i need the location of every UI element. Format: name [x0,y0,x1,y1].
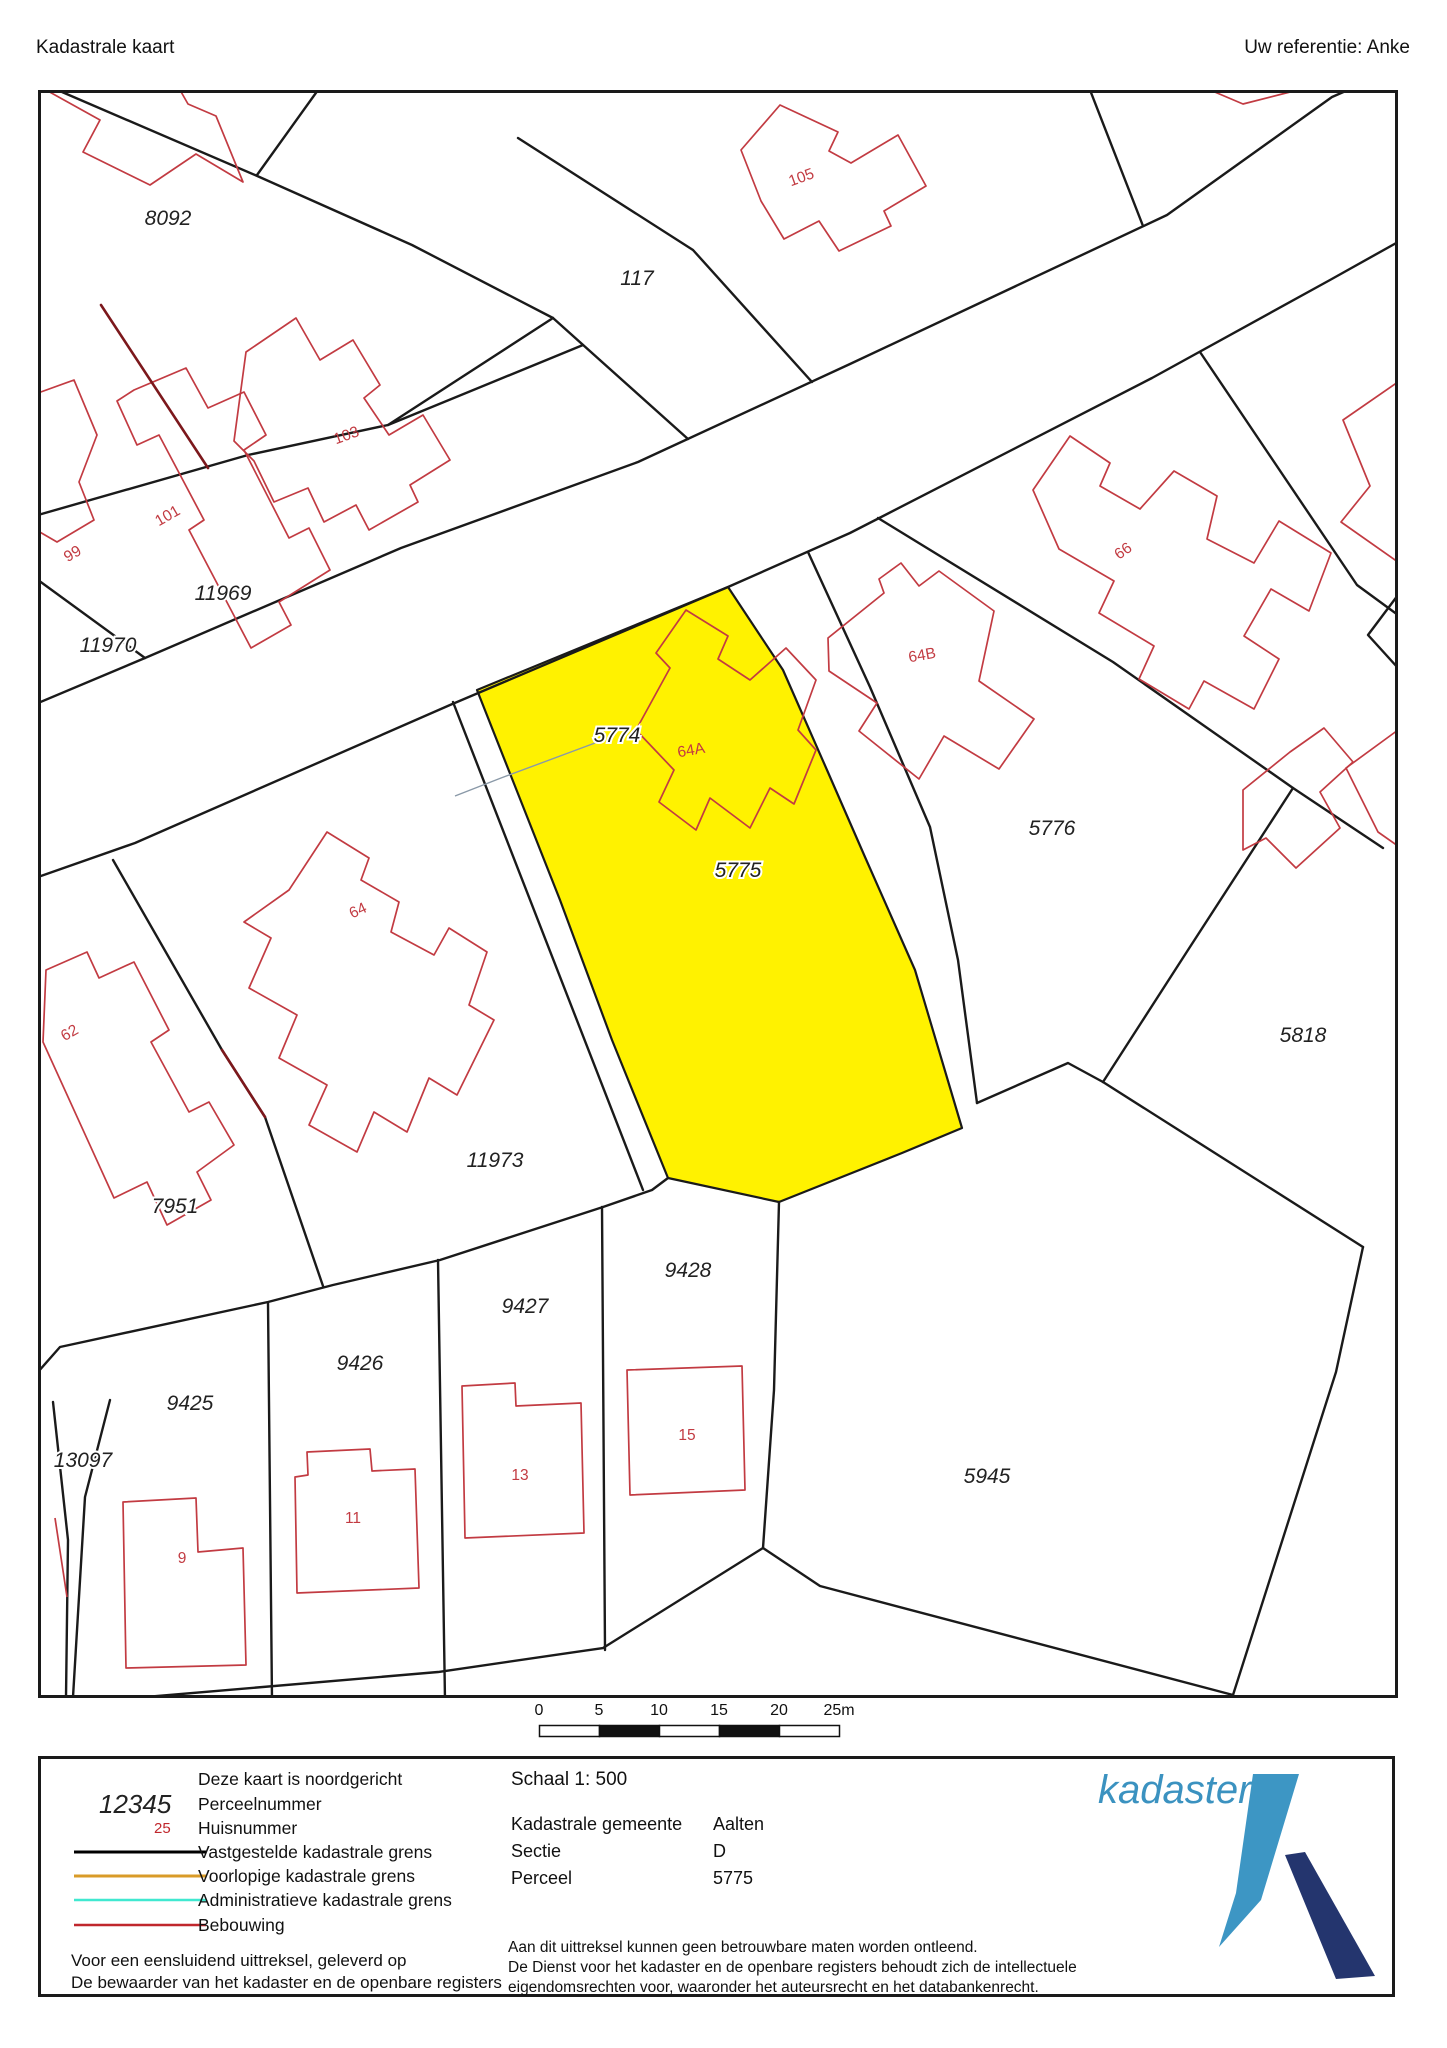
house-number-101: 101 [152,502,183,530]
scale-bar: 0510152025m [528,1702,858,1746]
north-note: Deze kaart is noordgericht [198,1769,402,1790]
scale-tick-0: 0 [535,1702,544,1720]
legend-fixed-boundary-label: Vastgestelde kadastrale grens [198,1842,432,1863]
house-number-62: 62 [58,1021,81,1044]
legend-house-number-label: Huisnummer [198,1818,297,1839]
parcel-number-9426: 9426 [337,1352,384,1375]
overlap-boundaries [101,305,265,1117]
parcel-number-117: 117 [620,267,655,290]
legend-building-label: Bebouwing [198,1915,285,1936]
municipality-value: Aalten [713,1814,764,1835]
parcel-number-11973: 11973 [467,1149,524,1172]
house-number-11: 11 [345,1510,361,1527]
house-number-64B: 64B [907,645,937,667]
parcel-number-9427: 9427 [502,1295,550,1318]
parcel-number-8092: 8092 [145,207,192,230]
scale-tick-15: 15 [710,1702,728,1720]
cadastral-map: 8092117119691197057745775577658181197379… [38,90,1398,1698]
reference-label: Uw referentie: Anke [1244,37,1410,59]
scale-bar-graphic [528,1724,858,1740]
page-title: Kadastrale kaart [36,37,174,59]
legend-parcel-number-label: Perceelnummer [198,1794,322,1815]
legend-box: Deze kaart is noordgericht 12345 Perceel… [38,1756,1395,1997]
scale-tick-5: 5 [595,1702,604,1720]
parcel-number-5818: 5818 [1280,1024,1327,1047]
scale-tick-25m: 25m [823,1702,854,1720]
parcel-number-5945: 5945 [964,1465,1011,1488]
section-label: Sectie [511,1841,561,1862]
municipality-label: Kadastrale gemeente [511,1814,682,1835]
map-canvas: 8092117119691197057745775577658181197379… [38,90,1398,1698]
parcel-number-5776: 5776 [1029,817,1076,840]
parcel-label: Perceel [511,1868,572,1889]
legend-administrative-boundary-label: Administratieve kadastrale grens [198,1890,452,1911]
parcel-number-11970: 11970 [80,634,137,657]
house-number-9: 9 [178,1550,187,1567]
house-number-15: 15 [678,1427,695,1444]
legend-provisional-boundary-label: Voorlopige kadastrale grens [198,1866,415,1887]
parcel-number-7951: 7951 [152,1195,199,1218]
legend-house-number-sample: 25 [154,1820,171,1837]
parcel-number-11969: 11969 [195,582,252,605]
house-number-103: 103 [331,423,361,448]
parcel-number-9428: 9428 [665,1259,712,1282]
parcel-value: 5775 [713,1868,753,1889]
kadaster-logo-mark [1193,1763,1393,1995]
parcel-number-13097: 13097 [54,1449,114,1472]
parcel-number-5774: 5774 [594,724,641,747]
legend-footer-line2: De bewaarder van het kadaster en de open… [71,1973,502,1993]
scale-tick-20: 20 [770,1702,788,1720]
legend-line-samples [69,1841,209,1951]
highlighted-parcel-5775 [477,587,962,1202]
house-number-99: 99 [61,542,84,565]
parcel-number-9425: 9425 [167,1392,214,1415]
disclaimer-line3: eigendomsrechten voor, waaronder het aut… [508,1979,1039,1997]
parcel-number-5775: 5775 [715,859,762,882]
section-value: D [713,1841,726,1862]
disclaimer-line1: Aan dit uittreksel kunnen geen betrouwba… [508,1939,978,1957]
scale-text: Schaal 1: 500 [511,1769,627,1791]
legend-parcel-number-sample: 12345 [99,1789,171,1820]
cadastral-extract-page: { "header": { "title": "Kadastrale kaart… [0,0,1447,2048]
legend-footer-line1: Voor een eensluidend uittreksel, gelever… [71,1951,407,1971]
house-number-64: 64 [347,899,370,922]
scale-tick-10: 10 [650,1702,668,1720]
house-number-13: 13 [511,1467,528,1484]
house-number-105: 105 [786,165,816,190]
house-number-66: 66 [1111,539,1135,563]
disclaimer-line2: De Dienst voor het kadaster en de openba… [508,1959,1077,1977]
